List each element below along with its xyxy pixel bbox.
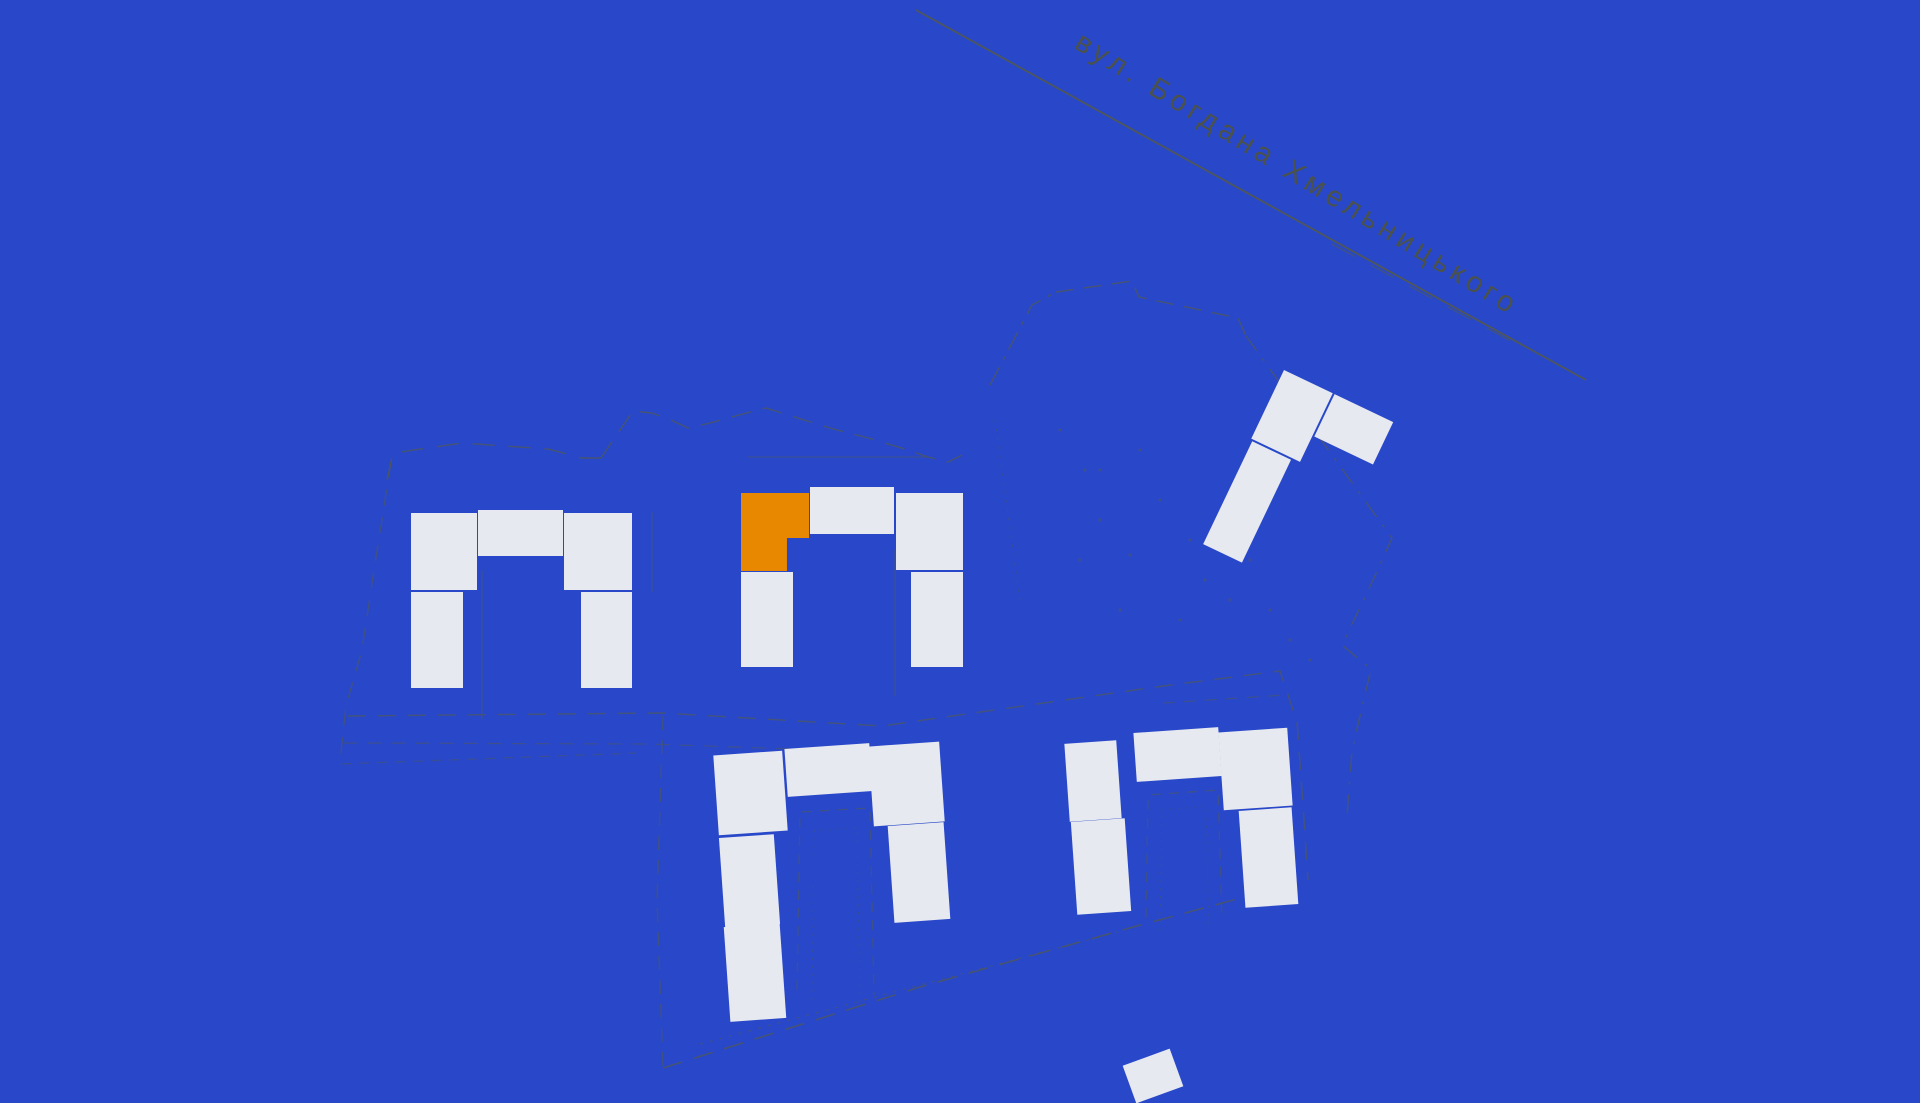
middle-cluster-top-boundary: [601, 408, 962, 462]
building-right: [1198, 370, 1401, 606]
building-bottom-middle-section-top-left[interactable]: [713, 751, 787, 836]
path-dashed-line-3: [341, 753, 636, 764]
building-middle-section-left-leg[interactable]: [741, 572, 793, 667]
building-bottom-middle-section-right-leg[interactable]: [888, 822, 951, 923]
building-middle-section-top-right[interactable]: [896, 493, 963, 570]
building-bottom-right-section-top-right[interactable]: [1218, 728, 1292, 811]
courtyard-dotted-bottom-right: [1160, 806, 1209, 930]
right-cluster-top-boundary: [1056, 281, 1246, 336]
building-bottom-middle-section-top-right[interactable]: [868, 742, 944, 827]
building-middle-section-top-middle[interactable]: [810, 487, 894, 534]
building-bottom-middle-section-left-middle[interactable]: [719, 834, 780, 928]
street-line: [916, 10, 1586, 380]
building-partial-bottom-edge[interactable]: [1123, 1049, 1184, 1103]
path-dashed-line-4: [1163, 695, 1284, 703]
courtyard-outline-bottom-right: [1146, 790, 1222, 918]
left-cluster-top-boundary: [387, 443, 601, 480]
building-left-section-left-leg[interactable]: [411, 592, 463, 688]
building-left-section-right-leg[interactable]: [581, 592, 632, 688]
building-bottom-right-section-left-leg[interactable]: [1071, 818, 1131, 915]
courtyard-dotted-bottom-middle: [812, 828, 860, 1002]
building-middle-section-highlighted[interactable]: [741, 493, 809, 571]
building-bottom-right-section-top-left[interactable]: [1064, 740, 1121, 821]
building-left-section-top-middle[interactable]: [478, 510, 563, 556]
building-bottom-middle-section-left-bottom[interactable]: [724, 923, 786, 1022]
building-left-section-top-left[interactable]: [411, 513, 477, 590]
courtyard-outline-bottom-middle: [797, 808, 874, 995]
left-cluster-left-boundary: [340, 462, 391, 762]
site-plan-map: вул. Богдана Хмельницького: [0, 0, 1920, 1080]
right-cluster-left-dotted-edge: [995, 420, 1020, 600]
building-bottom-right-section-top-middle[interactable]: [1133, 727, 1221, 782]
building-right-section-leg[interactable]: [1203, 441, 1291, 562]
building-bottom-middle-section-top-middle[interactable]: [784, 743, 872, 797]
building-bottom-right-section-right-leg[interactable]: [1239, 807, 1299, 907]
middle-right-cluster-divider: [990, 292, 1056, 385]
bottom-parcel-left-boundary: [657, 716, 663, 1068]
street-name-label: вул. Богдана Хмельницького: [1069, 26, 1525, 323]
building-middle-section-right-leg[interactable]: [911, 572, 963, 667]
building-left-section-top-right[interactable]: [564, 513, 632, 590]
